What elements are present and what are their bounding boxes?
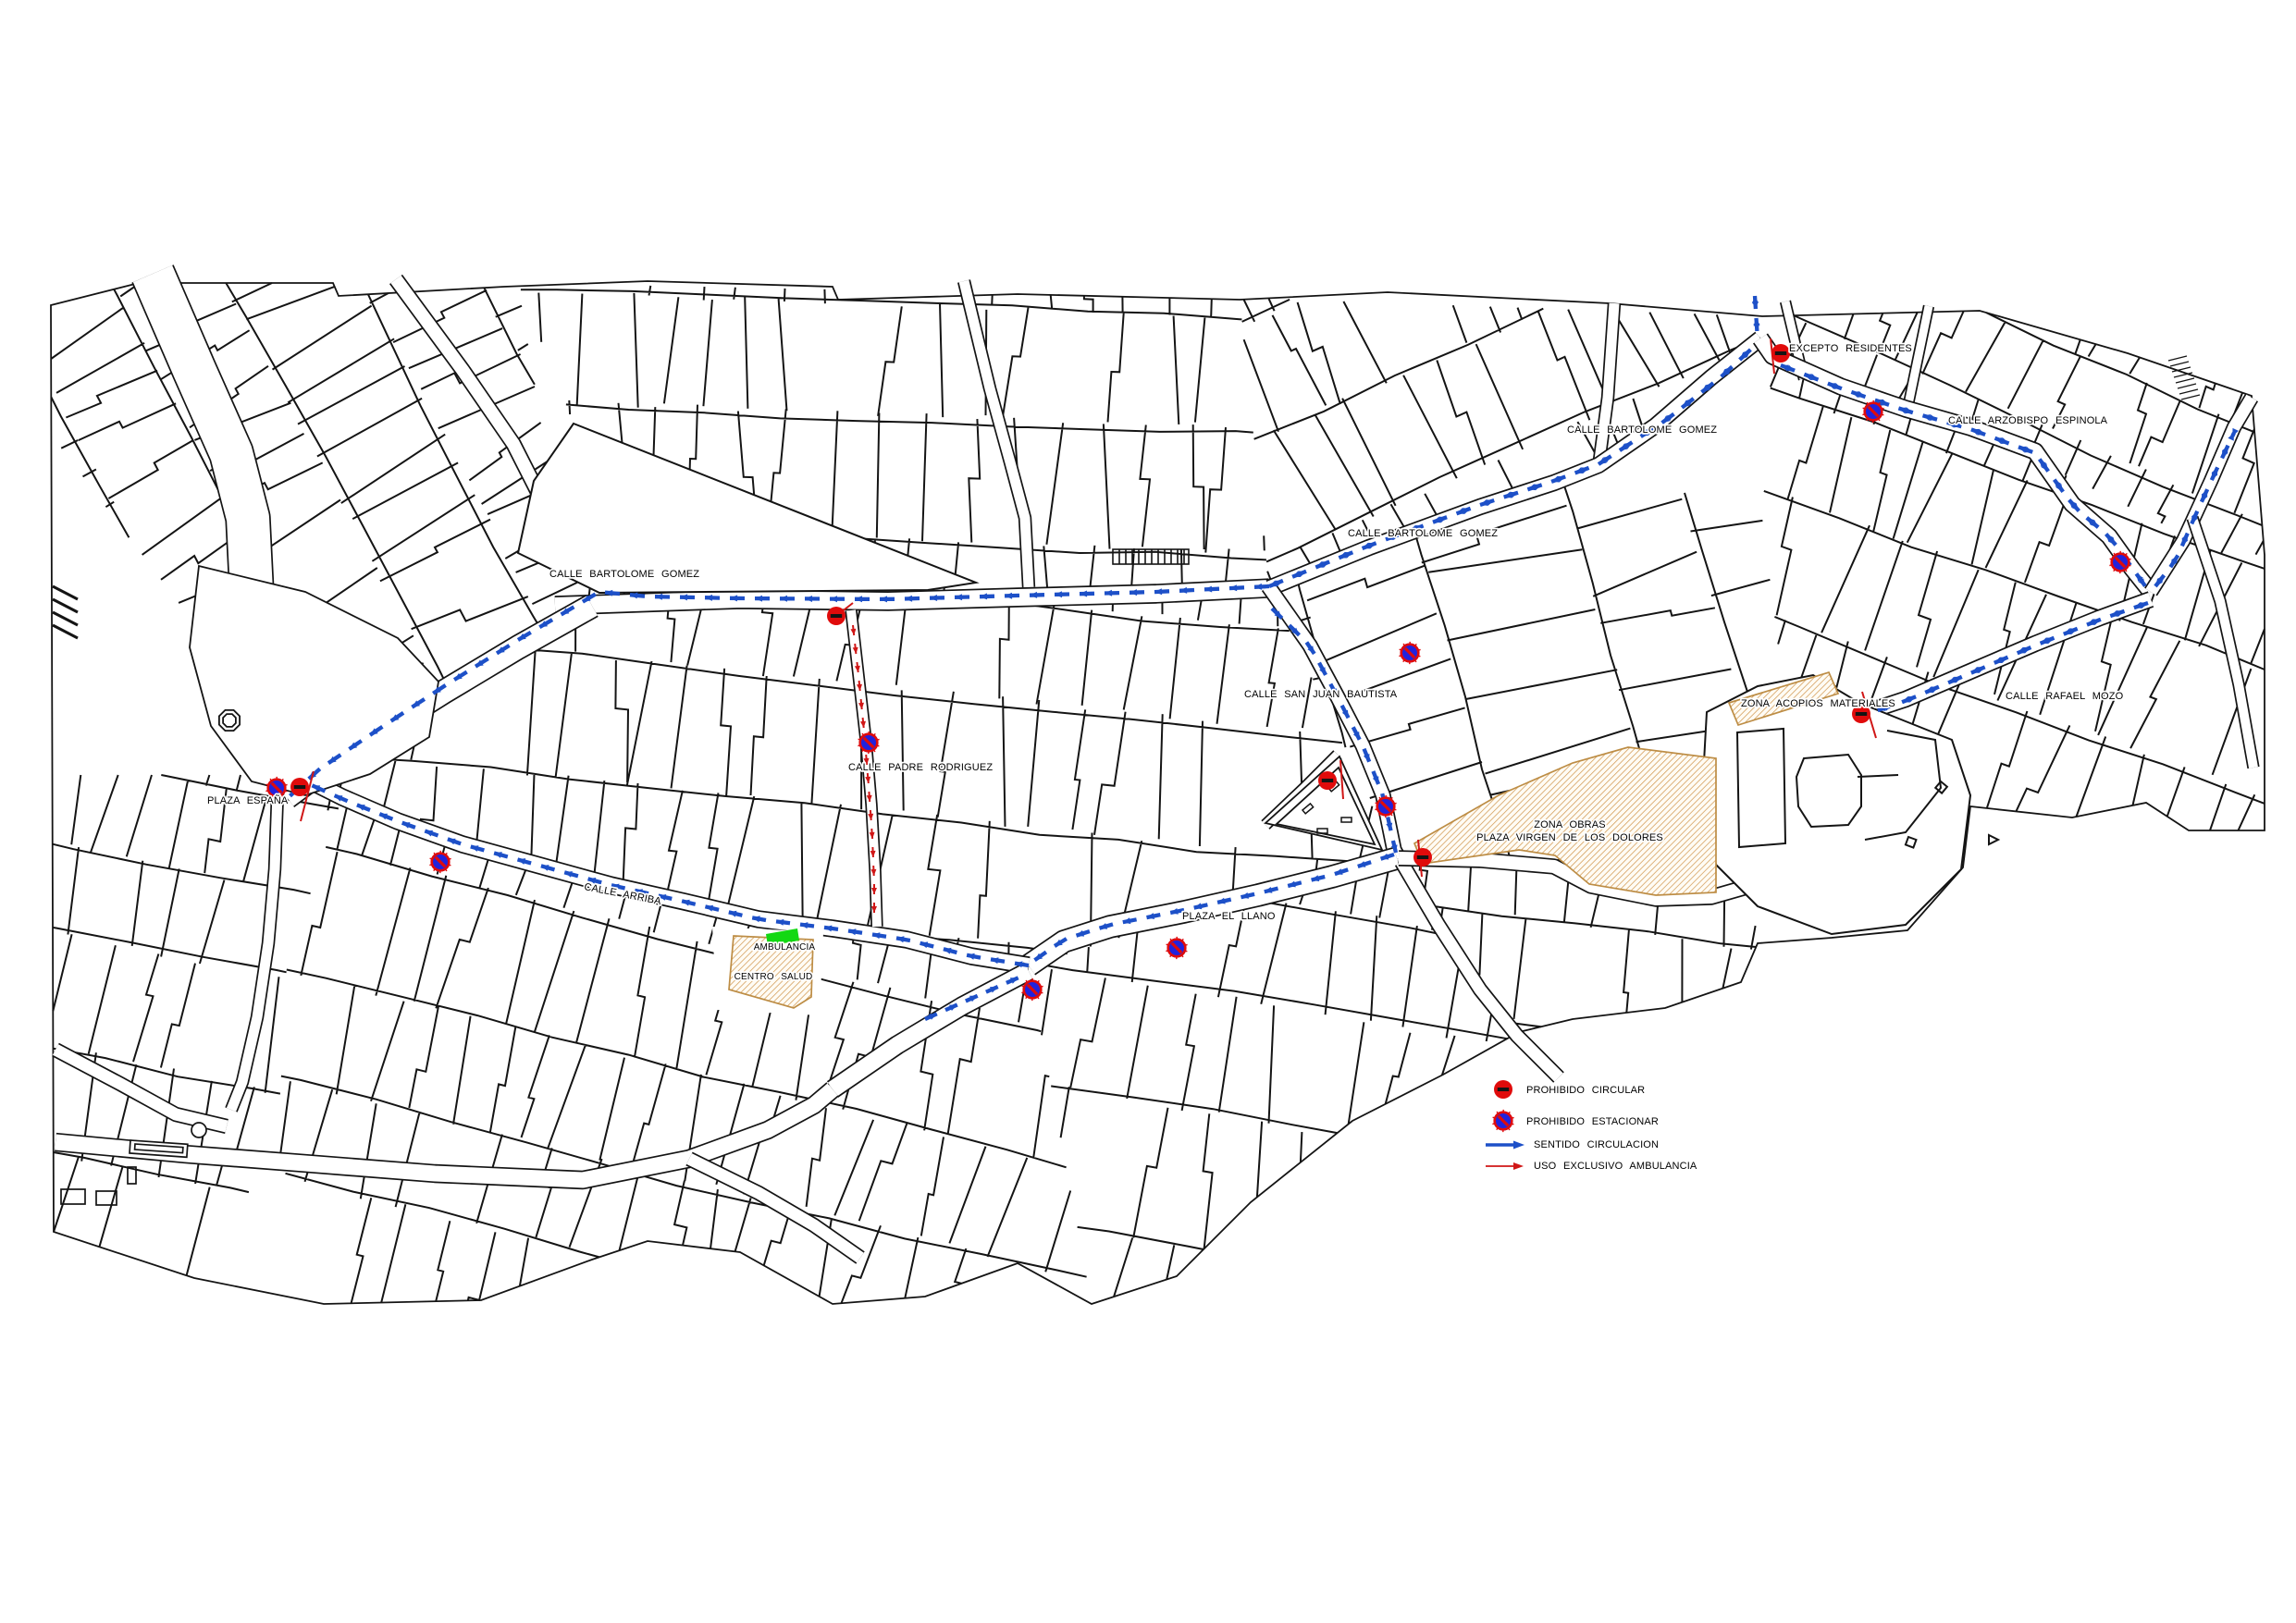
svg-text:PROHIBIDO ESTACIONAR: PROHIBIDO ESTACIONAR [1526,1116,1659,1127]
svg-text:AMBULANCIA: AMBULANCIA [754,942,816,953]
svg-text:PLAZA EL LLANO: PLAZA EL LLANO [1182,911,1276,922]
svg-text:USO EXCLUSIVO AMBULANCIA: USO EXCLUSIVO AMBULANCIA [1534,1161,1697,1172]
svg-text:ZONA OBRAS: ZONA OBRAS [1534,819,1606,830]
svg-text:PLAZA VIRGEN DE LOS DOLORE: PLAZA VIRGEN DE LOS DOLORES [1476,832,1663,843]
svg-text:PROHIBIDO CIRCULAR: PROHIBIDO CIRCULAR [1526,1085,1645,1096]
svg-text:ZONA ACOPIOS MATERIALES: ZONA ACOPIOS MATERIALES [1741,698,1895,709]
svg-text:CALLE ARZOBISPO ESPINOLA: CALLE ARZOBISPO ESPINOLA [1948,415,2108,426]
svg-text:EXCEPTO RESIDENTES: EXCEPTO RESIDENTES [1789,343,1912,354]
svg-text:PLAZA ESPAÑA: PLAZA ESPAÑA [207,794,289,806]
svg-text:CALLE SAN JUAN BAUTISTA: CALLE SAN JUAN BAUTISTA [1244,689,1398,700]
svg-text:CALLE RAFAEL MOZO: CALLE RAFAEL MOZO [2006,691,2124,702]
svg-text:SENTIDO CIRCULACION: SENTIDO CIRCULACION [1534,1139,1659,1150]
svg-text:CALLE PADRE RODRIGUEZ: CALLE PADRE RODRIGUEZ [848,762,993,773]
svg-text:CALLE BARTOLOME GOMEZ: CALLE BARTOLOME GOMEZ [549,569,699,580]
svg-text:CALLE BARTOLOME GOMEZ: CALLE BARTOLOME GOMEZ [1567,424,1717,436]
svg-text:CALLE BARTOLOME GOMEZ: CALLE BARTOLOME GOMEZ [1348,528,1498,539]
svg-text:CENTRO SALUD: CENTRO SALUD [734,972,813,982]
